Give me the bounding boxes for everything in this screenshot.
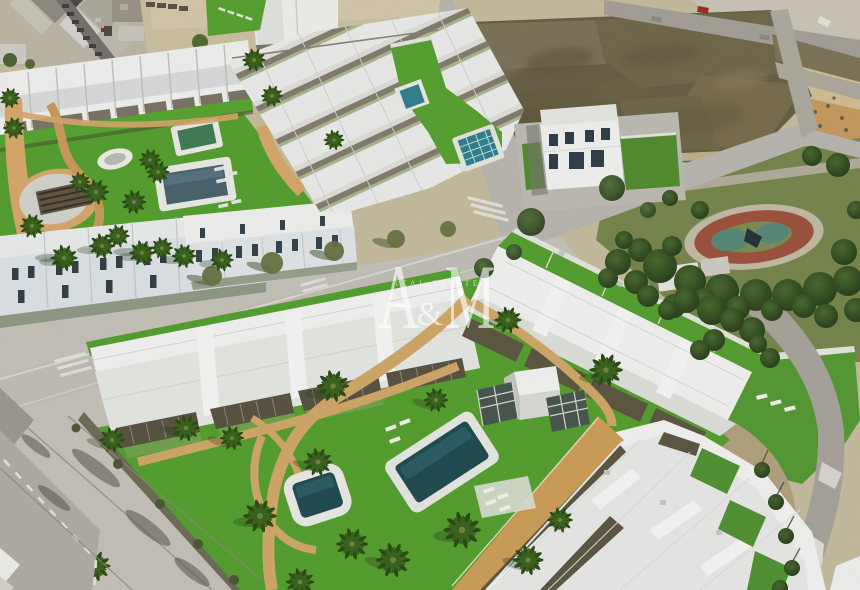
svg-text:&: & xyxy=(417,296,443,333)
svg-text:M: M xyxy=(445,246,496,348)
svg-text:A: A xyxy=(378,246,419,348)
svg-text:REAL ESTATE: REAL ESTATE xyxy=(393,279,481,288)
